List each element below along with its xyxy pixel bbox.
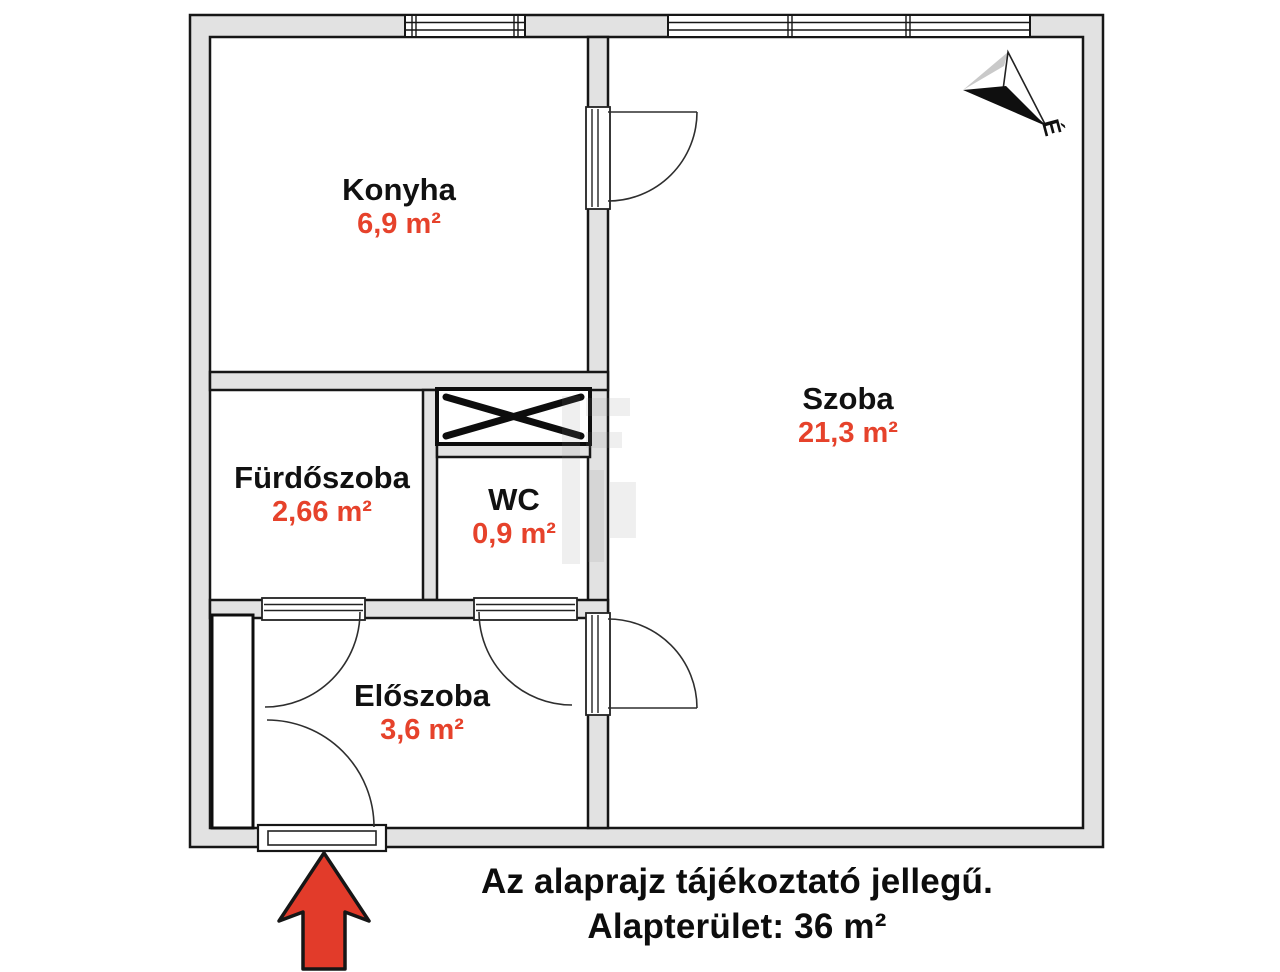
room-label-eloszoba: Előszoba 3,6 m² bbox=[354, 678, 490, 748]
floor-plan-image: É Konyha 6,9 m² Fürdőszoba 2,66 m² WC 0,… bbox=[0, 0, 1280, 972]
window-konyha bbox=[405, 15, 525, 37]
closet-strip bbox=[212, 615, 253, 828]
room-area: 6,9 m² bbox=[342, 208, 456, 242]
room-name: Szoba bbox=[798, 381, 898, 417]
room-name: WC bbox=[472, 482, 556, 518]
room-label-konyha: Konyha 6,9 m² bbox=[342, 172, 456, 242]
room-area: 2,66 m² bbox=[234, 496, 410, 530]
door-konyha-szoba bbox=[586, 107, 610, 209]
room-name: Konyha bbox=[342, 172, 456, 208]
door-entrance bbox=[258, 825, 386, 851]
door-eloszoba-szoba bbox=[586, 613, 610, 715]
room-name: Előszoba bbox=[354, 678, 490, 714]
wall-furdoszoba-right bbox=[423, 390, 437, 600]
footer-disclaimer: Az alaprajz tájékoztató jellegű. bbox=[481, 862, 993, 902]
room-label-szoba: Szoba 21,3 m² bbox=[798, 381, 898, 451]
outer-walls bbox=[190, 15, 1103, 847]
room-name: Fürdőszoba bbox=[234, 460, 410, 496]
room-area: 3,6 m² bbox=[354, 714, 490, 748]
door-wc bbox=[474, 598, 577, 620]
entrance-arrow-icon bbox=[279, 853, 369, 969]
footer-total-area: Alapterület: 36 m² bbox=[587, 907, 886, 947]
north-arrow-icon: É bbox=[963, 52, 1067, 139]
room-area: 21,3 m² bbox=[798, 417, 898, 451]
floor-plan-drawing: É bbox=[0, 0, 1280, 972]
room-label-wc: WC 0,9 m² bbox=[472, 482, 556, 552]
room-label-furdoszoba: Fürdőszoba 2,66 m² bbox=[234, 460, 410, 530]
room-area: 0,9 m² bbox=[472, 518, 556, 552]
door-furdoszoba bbox=[262, 598, 365, 620]
window-szoba bbox=[668, 15, 1030, 37]
